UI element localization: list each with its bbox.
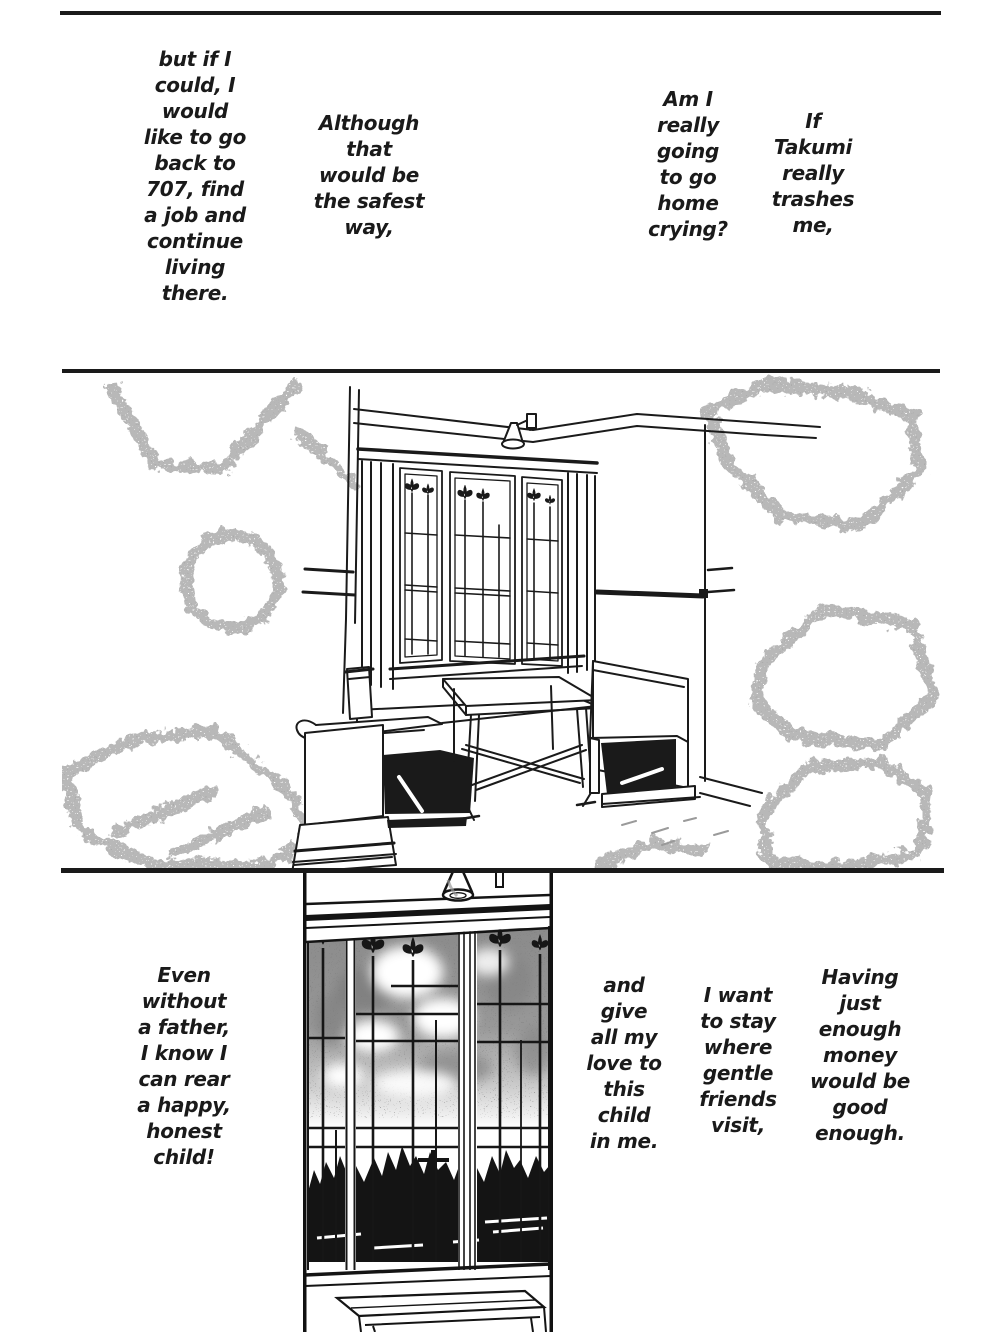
panel-divider-rule bbox=[61, 868, 944, 873]
window-sill bbox=[305, 1264, 551, 1286]
skyline-silhouette bbox=[308, 1146, 549, 1262]
wall-lamp bbox=[502, 414, 536, 449]
table-below-window bbox=[337, 1291, 546, 1332]
thought-rear-honest-child: Even without a father, I know I can rear… bbox=[105, 962, 263, 1170]
thought-go-back-to-707: but if I could, I would like to go back … bbox=[115, 46, 275, 306]
thought-safest-way: Although that would be the safest way, bbox=[290, 110, 448, 240]
thought-home-crying: Am I really going to go home crying? bbox=[616, 86, 760, 242]
top-border-rule bbox=[60, 11, 941, 15]
panel-room-scene bbox=[62, 369, 940, 872]
bench-left bbox=[292, 717, 474, 868]
room-scene-drawing bbox=[62, 373, 940, 868]
panel-border-right bbox=[550, 870, 554, 1332]
thought-takumi-trashes: If Takumi really trashes me, bbox=[750, 108, 876, 238]
window-closeup-drawing bbox=[303, 870, 553, 1332]
panel-border-left bbox=[303, 870, 307, 1332]
bench-right bbox=[590, 661, 695, 807]
sky-through-glass bbox=[308, 926, 552, 1128]
thought-gentle-friends: I want to stay where gentle friends visi… bbox=[676, 982, 800, 1138]
thought-enough-money: Having just enough money would be good e… bbox=[792, 964, 928, 1146]
thought-give-all-my-love: and give all my love to this child in me… bbox=[572, 972, 676, 1154]
bay-window bbox=[358, 449, 597, 689]
window-pane-center bbox=[450, 472, 515, 664]
manga-page: but if I could, I would like to go back … bbox=[0, 0, 999, 1332]
window-head-molding bbox=[306, 870, 550, 942]
table bbox=[443, 677, 598, 820]
window-pane-right bbox=[522, 477, 562, 666]
panel-window-closeup bbox=[303, 870, 553, 1332]
window-pane-left bbox=[400, 468, 442, 663]
